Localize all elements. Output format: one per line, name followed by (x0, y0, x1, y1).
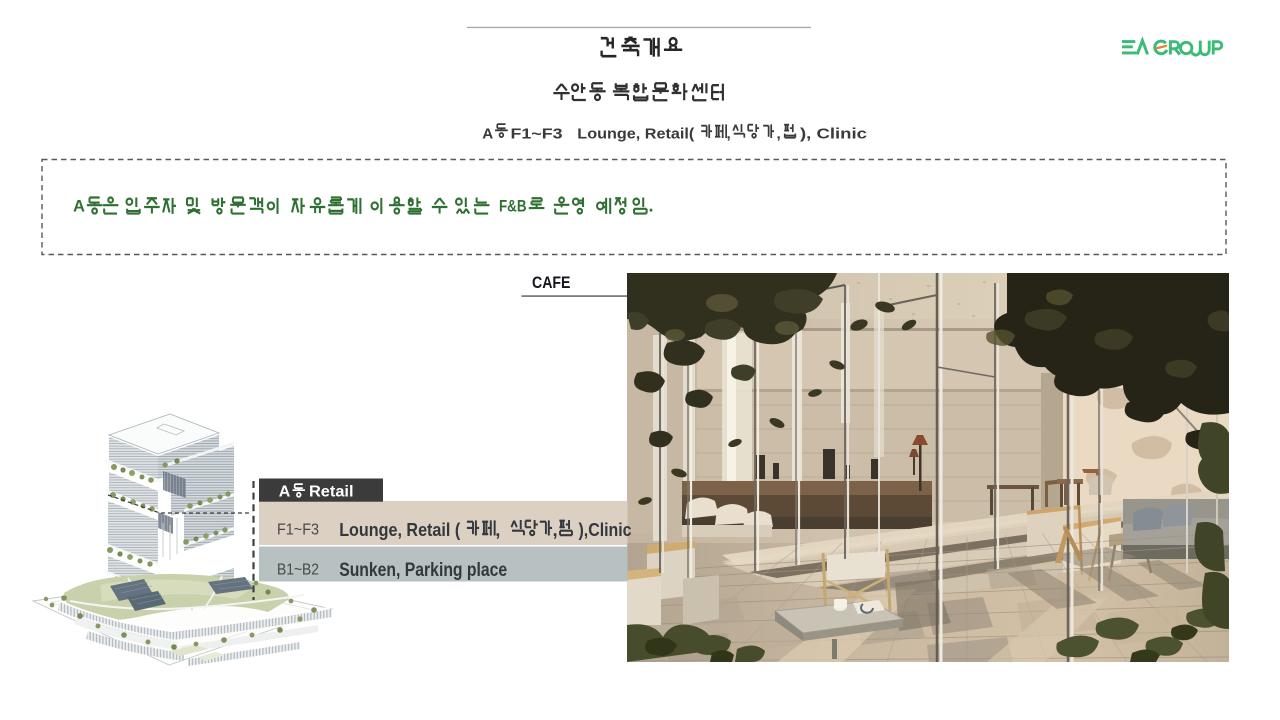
svg-text:Lounge, Retail(: Lounge, Retail( (577, 126, 695, 143)
svg-text:CAFE: CAFE (532, 274, 571, 292)
svg-text:F1~F3: F1~F3 (511, 126, 563, 143)
svg-text:A: A (279, 484, 291, 501)
svg-text:Retail: Retail (309, 484, 354, 501)
svg-text:F1~F3: F1~F3 (277, 522, 319, 539)
svg-text:,: , (553, 519, 558, 540)
svg-text:,: , (777, 126, 781, 143)
svg-text:Lounge, Retail (: Lounge, Retail ( (339, 519, 465, 540)
svg-text:.: . (649, 196, 654, 216)
svg-text:), Clinic: ), Clinic (800, 126, 867, 143)
svg-text:),Clinic: ),Clinic (579, 519, 632, 540)
svg-text:A: A (73, 197, 85, 216)
svg-text:A: A (482, 126, 493, 143)
svg-text:Sunken, Parking place: Sunken, Parking place (339, 560, 507, 581)
svg-text:F&B: F&B (499, 198, 527, 216)
svg-text:,: , (495, 519, 505, 540)
svg-text:B1~B2: B1~B2 (277, 562, 319, 579)
svg-text:,: , (727, 126, 731, 143)
